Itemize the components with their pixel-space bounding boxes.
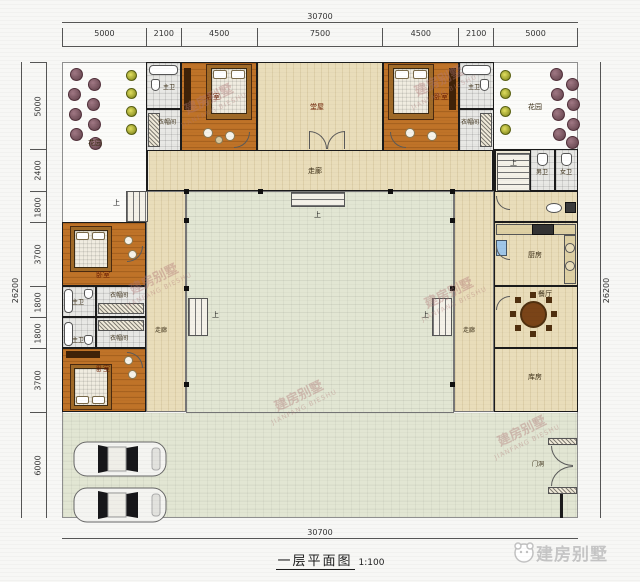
dim-left-total-value: 26200	[11, 277, 20, 302]
pillow-icon	[413, 70, 427, 79]
closet-shelf-icon	[98, 320, 144, 331]
dining-table-icon	[520, 301, 547, 328]
appliance-icon	[565, 202, 576, 213]
closet-shelf-icon	[480, 113, 492, 147]
chair-icon	[128, 370, 137, 379]
hall-label: 堂屋	[310, 104, 324, 111]
garden-left-label: 花园	[88, 140, 102, 147]
car-icon	[72, 484, 168, 526]
dim-left-segments: 5000 2400 1800 3700 1800 1800 3700 6000	[30, 62, 47, 518]
burner-icon	[565, 243, 575, 253]
plant-icon	[500, 124, 511, 135]
master-bath-left-upper-label: 主卫	[72, 300, 84, 306]
plant-icon	[500, 70, 511, 81]
gate-label: 门洞	[532, 462, 544, 468]
brand-face-icon	[512, 540, 536, 564]
shrub-icon	[70, 128, 83, 141]
dim-segment: 7500	[258, 28, 384, 46]
plant-icon	[126, 106, 137, 117]
stove-icon	[532, 224, 554, 235]
kitchen-label: 厨房	[528, 252, 542, 259]
cloak-left-upper-label: 衣帽间	[110, 293, 128, 299]
courtyard	[186, 191, 454, 413]
dim-segment: 1800	[30, 192, 46, 223]
dim-segment: 4500	[383, 28, 459, 46]
dim-bottom-total-value: 30700	[62, 528, 578, 537]
toilet-icon	[480, 79, 489, 91]
pillow-icon	[76, 232, 89, 240]
corridor-top-label: 走廊	[308, 168, 322, 175]
plant-icon	[126, 70, 137, 81]
corridor-left	[146, 191, 186, 412]
wardrobe-icon	[449, 68, 456, 110]
dim-segment: 2100	[147, 28, 182, 46]
toilet-men-label: 男卫	[536, 170, 548, 176]
dim-top-total: 30700	[62, 10, 578, 23]
pillow-icon	[231, 70, 245, 79]
shrub-icon	[566, 78, 579, 91]
corridor-right	[454, 191, 494, 412]
column-dot	[184, 189, 189, 194]
shrub-icon	[567, 118, 580, 131]
cloak-topright-label: 衣帽间	[461, 120, 479, 126]
chair-icon	[124, 236, 133, 245]
dining-chair-icon	[515, 325, 521, 331]
shrub-icon	[552, 108, 565, 121]
gate-post	[548, 438, 577, 445]
corridor-left-label: 走廊	[155, 328, 167, 334]
column-dot	[450, 382, 455, 387]
shrub-icon	[566, 136, 579, 149]
dim-top-total-value: 30700	[62, 12, 578, 21]
garden-right-label: 花园	[528, 104, 542, 111]
bedroom-topright-label: 卧室	[434, 94, 448, 101]
dim-segment: 3700	[30, 223, 46, 287]
dim-segment: 3700	[30, 349, 46, 413]
column-dot	[258, 189, 263, 194]
dim-segment: 5000	[494, 28, 578, 46]
steps-right	[432, 298, 452, 336]
toilet-icon	[84, 335, 93, 345]
pillow-icon	[92, 396, 105, 404]
dining-chair-icon	[530, 292, 536, 298]
washbasin-icon	[546, 203, 562, 213]
plant-icon	[126, 88, 137, 99]
stairs-left-wing	[126, 191, 148, 222]
column-dot	[450, 286, 455, 291]
dim-segment: 1800	[30, 287, 46, 318]
yard-wall-stub	[560, 494, 563, 518]
toilet-icon	[537, 153, 548, 166]
dim-segment: 4500	[182, 28, 258, 46]
shrub-icon	[69, 108, 82, 121]
bedroom-left-upper-label: 卧室	[96, 272, 110, 279]
dim-right-total-value: 26200	[603, 277, 612, 302]
toilet-icon	[561, 153, 572, 166]
column-dot	[184, 286, 189, 291]
brand-logo-text: 建房别墅	[536, 540, 608, 565]
dim-segment: 6000	[30, 413, 46, 517]
toilet-women-label: 女卫	[560, 170, 572, 176]
title-scale: 1:100	[359, 558, 385, 568]
column-dot	[388, 189, 393, 194]
corridor-right-label: 走廊	[463, 328, 475, 334]
shrub-icon	[88, 118, 101, 131]
plant-icon	[500, 106, 511, 117]
dining-chair-icon	[510, 311, 516, 317]
bathtub-icon	[149, 65, 178, 75]
dining-label: 餐厅	[538, 291, 552, 298]
chair-icon	[405, 128, 415, 138]
master-bath-left-lower-label: 主卫	[72, 338, 84, 344]
pillow-icon	[92, 232, 105, 240]
up-label: 上	[510, 158, 517, 168]
storage-label: 库房	[528, 374, 542, 381]
pillow-icon	[395, 70, 409, 79]
dim-bottom-total: 30700	[62, 526, 578, 539]
brand-logo: 建房别墅	[512, 538, 636, 566]
coffee-table-icon	[215, 136, 223, 144]
master-bath-topright-label: 主卫	[468, 85, 480, 91]
plant-icon	[126, 124, 137, 135]
dim-segment: 1800	[30, 318, 46, 349]
shrub-icon	[553, 128, 566, 141]
dim-segment: 5000	[63, 28, 147, 46]
cloak-topleft-label: 衣帽间	[158, 120, 176, 126]
shrub-icon	[88, 78, 101, 91]
shrub-icon	[87, 98, 100, 111]
drawing-title: 一层平面图1:100	[230, 550, 430, 569]
shrub-icon	[550, 68, 563, 81]
dining-chair-icon	[546, 325, 552, 331]
title-text: 一层平面图	[276, 554, 355, 570]
dim-right-total: 26200	[600, 62, 613, 518]
chair-icon	[427, 131, 437, 141]
shrub-icon	[551, 88, 564, 101]
bathtub-icon	[462, 65, 491, 75]
dim-segment: 2400	[30, 150, 46, 192]
shrub-icon	[68, 88, 81, 101]
dining-chair-icon	[551, 311, 557, 317]
up-label: 上	[422, 310, 429, 320]
up-label: 上	[314, 210, 321, 220]
up-label: 上	[212, 310, 219, 320]
closet-shelf-icon	[98, 303, 144, 314]
bedroom-left-lower-label: 卧室	[96, 366, 110, 373]
column-dot	[450, 189, 455, 194]
column-dot	[184, 218, 189, 223]
dining-chair-icon	[530, 331, 536, 337]
dim-left-total: 26200	[10, 62, 22, 518]
plant-icon	[500, 88, 511, 99]
pillow-icon	[76, 396, 89, 404]
chair-icon	[203, 128, 213, 138]
bedroom-topleft-label: 卧室	[206, 94, 220, 101]
dim-segment: 2100	[459, 28, 494, 46]
dim-top-segments: 5000 2100 4500 7500 4500 2100 5000	[62, 28, 578, 47]
dining-chair-icon	[515, 297, 521, 303]
burner-icon	[565, 261, 575, 271]
gate-post	[548, 487, 577, 494]
cloak-left-lower-label: 衣帽间	[110, 336, 128, 342]
steps-left	[188, 298, 208, 336]
dim-segment: 5000	[30, 63, 46, 150]
shrub-icon	[567, 98, 580, 111]
shrub-icon	[70, 68, 83, 81]
car-icon	[72, 438, 168, 480]
master-bath-topleft-label: 主卫	[163, 85, 175, 91]
up-label: 上	[113, 198, 120, 208]
wardrobe-icon	[66, 351, 100, 358]
column-dot	[184, 382, 189, 387]
column-dot	[450, 218, 455, 223]
steps-top-center	[291, 192, 345, 207]
pillow-icon	[213, 70, 227, 79]
wardrobe-icon	[184, 68, 191, 110]
toilet-icon	[84, 289, 93, 299]
toilet-icon	[151, 79, 160, 91]
